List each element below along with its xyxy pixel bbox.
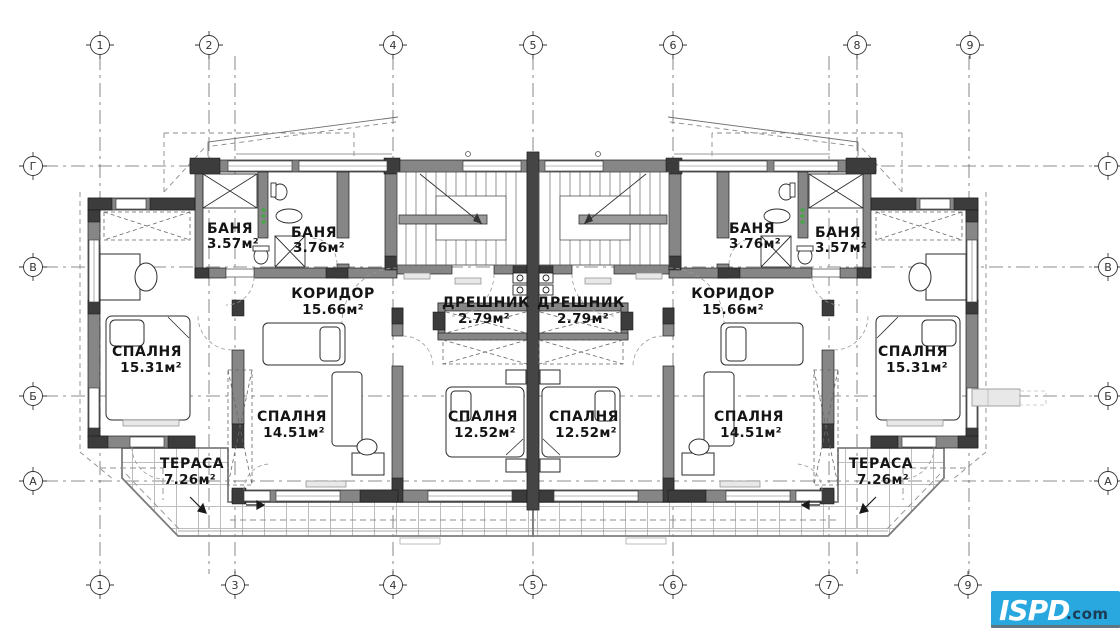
svg-text:15.66м²: 15.66м² [702,302,764,318]
unit-right-geometry [527,117,986,544]
svg-text:14.51м²: 14.51м² [263,425,325,441]
room-label-closet-r: ДРЕШНИК [537,295,625,311]
grid-bubble-top-4: 4 [379,31,407,59]
grid-bubble-bottom-4: 4 [379,571,407,599]
grid-bubble-left-a: А [19,467,47,495]
grid-bubble-bottom-1: 1 [86,571,114,599]
svg-text:8: 8 [854,39,861,52]
grid-bubble-bottom-6: 6 [659,571,687,599]
svg-text:В: В [29,261,37,274]
room-label-bedroom-r2: СПАЛНЯ [714,409,784,425]
svg-text:14.51м²: 14.51м² [720,425,782,441]
svg-text:2: 2 [206,39,213,52]
grid-bubble-top-8: 8 [843,31,871,59]
svg-text:Б: Б [1104,390,1112,403]
room-label-corridor-r: КОРИДОР [691,286,774,302]
floor-plan-canvas: 1 2 4 5 6 8 9 1 3 4 5 6 7 9 Г В Б А Г В … [0,0,1120,632]
grid-bubble-right-g: Г [1094,152,1120,180]
svg-text:А: А [1104,475,1112,488]
svg-text:2.79м²: 2.79м² [458,311,510,327]
svg-text:1: 1 [97,579,104,592]
svg-text:5: 5 [530,39,537,52]
svg-text:9: 9 [965,579,972,592]
svg-text:7.26м²: 7.26м² [164,472,216,488]
svg-text:3.57м²: 3.57м² [815,240,867,256]
room-label-bedroom-l3: СПАЛНЯ [448,409,518,425]
room-label-bath-l1: БАНЯ [207,221,253,237]
svg-text:15.66м²: 15.66м² [302,302,364,318]
grid-bubble-left-b: Б [19,382,47,410]
svg-text:7: 7 [826,579,833,592]
room-label-bath-l2: БАНЯ [291,225,337,241]
svg-text:2.79м²: 2.79м² [557,311,609,327]
svg-text:Г: Г [30,160,37,173]
grid-bubble-top-9: 9 [956,31,984,59]
svg-text:3.57м²: 3.57м² [207,236,259,252]
grid-bubble-right-a: А [1094,467,1120,495]
side-ledge [972,389,1046,406]
svg-text:5: 5 [530,579,537,592]
svg-text:Г: Г [1105,160,1112,173]
svg-text:3.76м²: 3.76м² [293,240,345,256]
grid-bubble-left-v: В [19,253,47,281]
grid-bubble-top-5: 5 [519,31,547,59]
room-label-bath-r2: БАНЯ [815,225,861,241]
grid-bubble-top-6: 6 [659,31,687,59]
svg-text:7.26м²: 7.26м² [857,472,909,488]
room-label-bedroom-l2: СПАЛНЯ [257,409,327,425]
grid-bubble-left-g: Г [19,152,47,180]
svg-text:12.52м²: 12.52м² [555,425,617,441]
svg-text:В: В [1104,261,1112,274]
svg-text:6: 6 [670,39,677,52]
floor-plan-page: 1 2 4 5 6 8 9 1 3 4 5 6 7 9 Г В Б А Г В … [0,0,1120,632]
svg-text:Б: Б [29,390,37,403]
svg-text:15.31м²: 15.31м² [886,360,948,376]
grid-bubble-top-1: 1 [86,31,114,59]
grid-bubble-bottom-5: 5 [519,571,547,599]
grid-bubble-top-2: 2 [195,31,223,59]
grid-bubble-bottom-7: 7 [815,571,843,599]
grid-bubble-bottom-3: 3 [221,571,249,599]
room-label-bedroom-r1: СПАЛНЯ [878,344,948,360]
svg-text:4: 4 [390,579,397,592]
room-label-bedroom-l1: СПАЛНЯ [112,344,182,360]
svg-text:1: 1 [97,39,104,52]
svg-text:4: 4 [390,39,397,52]
svg-text:3.76м²: 3.76м² [729,236,781,252]
svg-text:3: 3 [232,579,239,592]
grid-bubble-right-v: В [1094,253,1120,281]
logo-tld-text[interactable]: .com [1066,605,1109,623]
logo-brand-text[interactable]: ISPD [999,594,1070,627]
grid-bubble-right-b: Б [1094,382,1120,410]
svg-text:15.31м²: 15.31м² [120,360,182,376]
room-label-terrace-l: ТЕРАСА [160,456,224,472]
svg-text:9: 9 [967,39,974,52]
room-label-closet-l: ДРЕШНИК [442,295,530,311]
svg-text:6: 6 [670,579,677,592]
logo-watermark[interactable]: ISPD .com [991,591,1120,628]
unit-left-geometry [80,117,539,544]
svg-text:А: А [29,475,37,488]
svg-text:12.52м²: 12.52м² [454,425,516,441]
room-label-corridor-l: КОРИДОР [291,286,374,302]
room-label-bath-r1: БАНЯ [729,221,775,237]
room-label-terrace-r: ТЕРАСА [849,456,913,472]
grid-bubble-bottom-9: 9 [954,571,982,599]
room-label-bedroom-r3: СПАЛНЯ [549,409,619,425]
